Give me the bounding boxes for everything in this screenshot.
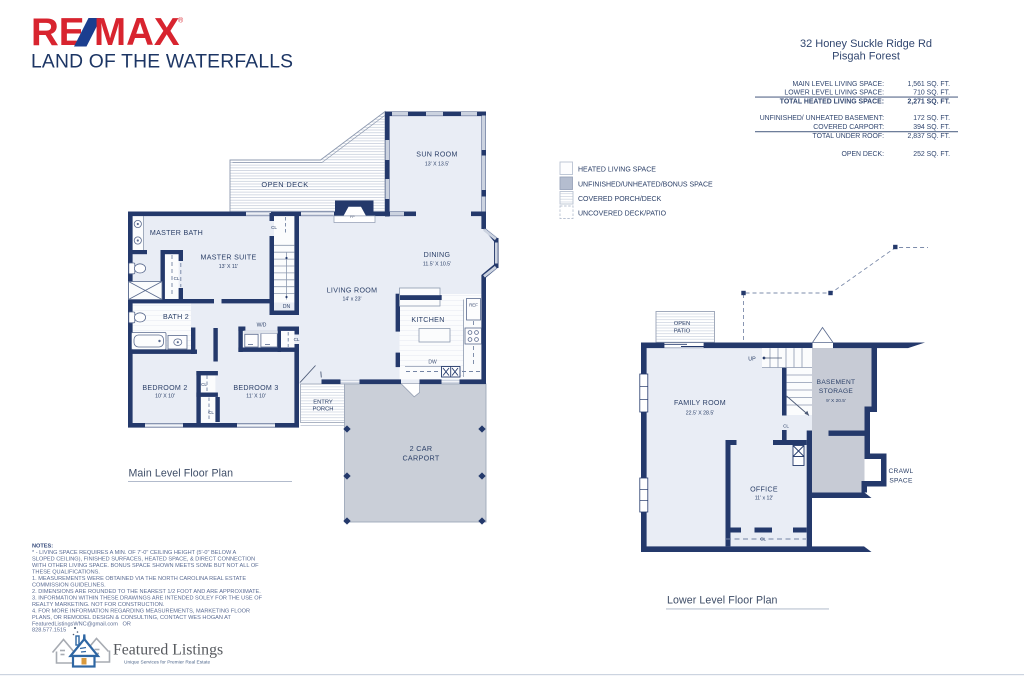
svg-text:LOWER LEVEL LIVING SPACE:: LOWER LEVEL LIVING SPACE: [784,90,884,97]
svg-text:* - LIVING SPACE REQUIRES A MI: * - LIVING SPACE REQUIRES A MIN. OF 7'-0… [32,550,236,556]
svg-text:KITCHEN: KITCHEN [411,316,444,324]
svg-text:13' X 13.5': 13' X 13.5' [425,162,449,168]
svg-text:CL: CL [201,382,207,387]
svg-text:THESE QUALIFICATIONS.: THESE QUALIFICATIONS. [32,570,100,576]
svg-text:MASTER BATH: MASTER BATH [150,229,203,237]
svg-text:UNFINISHED/UNHEATED/BONUS SPAC: UNFINISHED/UNHEATED/BONUS SPACE [578,182,713,189]
svg-text:1,561 SQ. FT.: 1,561 SQ. FT. [907,81,950,88]
svg-text:11' X 10': 11' X 10' [246,394,265,400]
svg-text:Lower Level Floor Plan: Lower Level Floor Plan [667,595,778,607]
svg-text:W/D: W/D [257,323,267,329]
svg-text:11' x 12': 11' x 12' [755,496,774,502]
svg-text:TOTAL HEATED LIVING SPACE:: TOTAL HEATED LIVING SPACE: [780,99,884,106]
svg-text:Pisgah Forest: Pisgah Forest [832,51,900,63]
svg-text:MASTER SUITE: MASTER SUITE [200,254,256,262]
svg-text:828.577.1515: 828.577.1515 [32,628,66,634]
svg-text:2,271 SQ. FT.: 2,271 SQ. FT. [907,99,950,106]
svg-text:UNFINISHED/ UNHEATED BASEMENT:: UNFINISHED/ UNHEATED BASEMENT: [760,115,884,122]
svg-text:PLANS, OR REMODEL DESIGN & CON: PLANS, OR REMODEL DESIGN & CONSULTING, C… [32,615,231,621]
svg-text:11.5' X 10.5': 11.5' X 10.5' [423,262,451,268]
svg-text:NOTES:: NOTES: [32,544,53,550]
svg-text:ENTRY: ENTRY [313,400,333,406]
svg-text:COMMISSION GUIDELINES.: COMMISSION GUIDELINES. [32,583,106,589]
svg-text:BATH 2: BATH 2 [163,313,189,321]
svg-text:CL: CL [760,537,766,542]
svg-text:9' X 20.5': 9' X 20.5' [826,398,846,404]
svg-text:BEDROOM 2: BEDROOM 2 [142,384,187,392]
svg-text:®: ® [178,17,184,25]
svg-text:172 SQ. FT.: 172 SQ. FT. [913,115,950,122]
svg-text:1. MEASUREMENTS WERE OBTAINED: 1. MEASUREMENTS WERE OBTAINED VIA THE NO… [32,576,246,582]
svg-text:CRAWL: CRAWL [888,468,913,475]
svg-text:2 CAR: 2 CAR [410,444,433,453]
svg-text:CARPORT: CARPORT [402,454,439,463]
svg-text:Unique Services for Premier Re: Unique Services for Premier Real Estate [124,660,210,666]
svg-text:DINING: DINING [424,251,451,259]
svg-text:SLOPED CEILING), FINISHED SURF: SLOPED CEILING), FINISHED SURFACES, HEAT… [32,557,255,563]
svg-text:CL: CL [294,337,300,342]
svg-text:COVERED CARPORT:: COVERED CARPORT: [813,124,884,131]
svg-text:UP: UP [748,357,756,363]
svg-text:REF: REF [469,303,478,308]
svg-text:Main Level Floor Plan: Main Level Floor Plan [129,468,234,480]
svg-text:394 SQ. FT.: 394 SQ. FT. [913,124,950,131]
svg-text:2,837 SQ. FT.: 2,837 SQ. FT. [907,133,950,140]
svg-text:WITH OTHER LIVING SPACE. BONUS: WITH OTHER LIVING SPACE. BONUS SPACE SHO… [32,563,259,569]
svg-text:Featured Listings: Featured Listings [113,642,223,659]
svg-text:4. FOR MORE INFORMATION REGARD: 4. FOR MORE INFORMATION REGARDING MEASUR… [32,609,250,615]
svg-text:HEATED LIVING SPACE: HEATED LIVING SPACE [578,167,656,174]
svg-text:OPEN DECK: OPEN DECK [261,180,308,189]
svg-text:710 SQ. FT.: 710 SQ. FT. [913,90,950,97]
svg-text:LIVING ROOM: LIVING ROOM [327,287,378,295]
svg-text:BASEMENT: BASEMENT [817,379,856,386]
svg-text:22.5' X 28.5': 22.5' X 28.5' [686,411,715,417]
svg-text:RE: RE [31,11,84,54]
svg-text:FAMILY ROOM: FAMILY ROOM [674,399,726,407]
svg-text:CL: CL [174,276,180,281]
svg-text:OPEN DECK:: OPEN DECK: [841,151,884,158]
svg-text:TOTAL UNDER ROOF:: TOTAL UNDER ROOF: [813,133,885,140]
svg-text:MAX: MAX [94,11,180,54]
svg-text:UNCOVERED DECK/PATIO: UNCOVERED DECK/PATIO [578,211,667,218]
svg-text:SUN ROOM: SUN ROOM [416,151,457,159]
svg-text:STORAGE: STORAGE [819,388,854,395]
svg-text:DW: DW [428,360,437,366]
svg-text:PATIO: PATIO [674,329,691,335]
svg-text:BEDROOM 3: BEDROOM 3 [233,384,278,392]
svg-text:32 Honey Suckle Ridge Rd: 32 Honey Suckle Ridge Rd [800,38,932,50]
svg-text:10' X 10': 10' X 10' [155,394,175,400]
svg-text:MAIN LEVEL LIVING SPACE:: MAIN LEVEL LIVING SPACE: [792,81,884,88]
svg-text:CL: CL [271,225,277,230]
svg-text:COVERED PORCH/DECK: COVERED PORCH/DECK [578,196,662,203]
svg-text:CL: CL [783,424,789,429]
svg-text:OFFICE: OFFICE [750,486,778,494]
svg-text:PORCH: PORCH [313,407,334,413]
svg-text:REALTY MARKETING. NOT FOR CON: REALTY MARKETING. NOT FOR CONSTRUCTION. [32,602,165,608]
svg-text:3. INFORMATION WITHIN THESE DR: 3. INFORMATION WITHIN THESE DRAWINGS ARE… [32,596,263,602]
svg-text:CL: CL [208,410,214,415]
svg-text:OPEN: OPEN [674,321,690,327]
svg-text:LAND OF THE WATERFALLS: LAND OF THE WATERFALLS [31,52,293,73]
svg-text:FP: FP [350,215,355,219]
svg-text:13' X 11': 13' X 11' [219,264,238,270]
svg-text:DN: DN [283,304,291,310]
svg-text:2. DIMENSIONS ARE ROUNDED TO T: 2. DIMENSIONS ARE ROUNDED TO THE NEAREST… [32,589,261,595]
svg-text:14' x 23': 14' x 23' [343,297,362,303]
svg-text:SPACE: SPACE [889,478,913,485]
svg-text:252 SQ. FT.: 252 SQ. FT. [913,151,950,158]
